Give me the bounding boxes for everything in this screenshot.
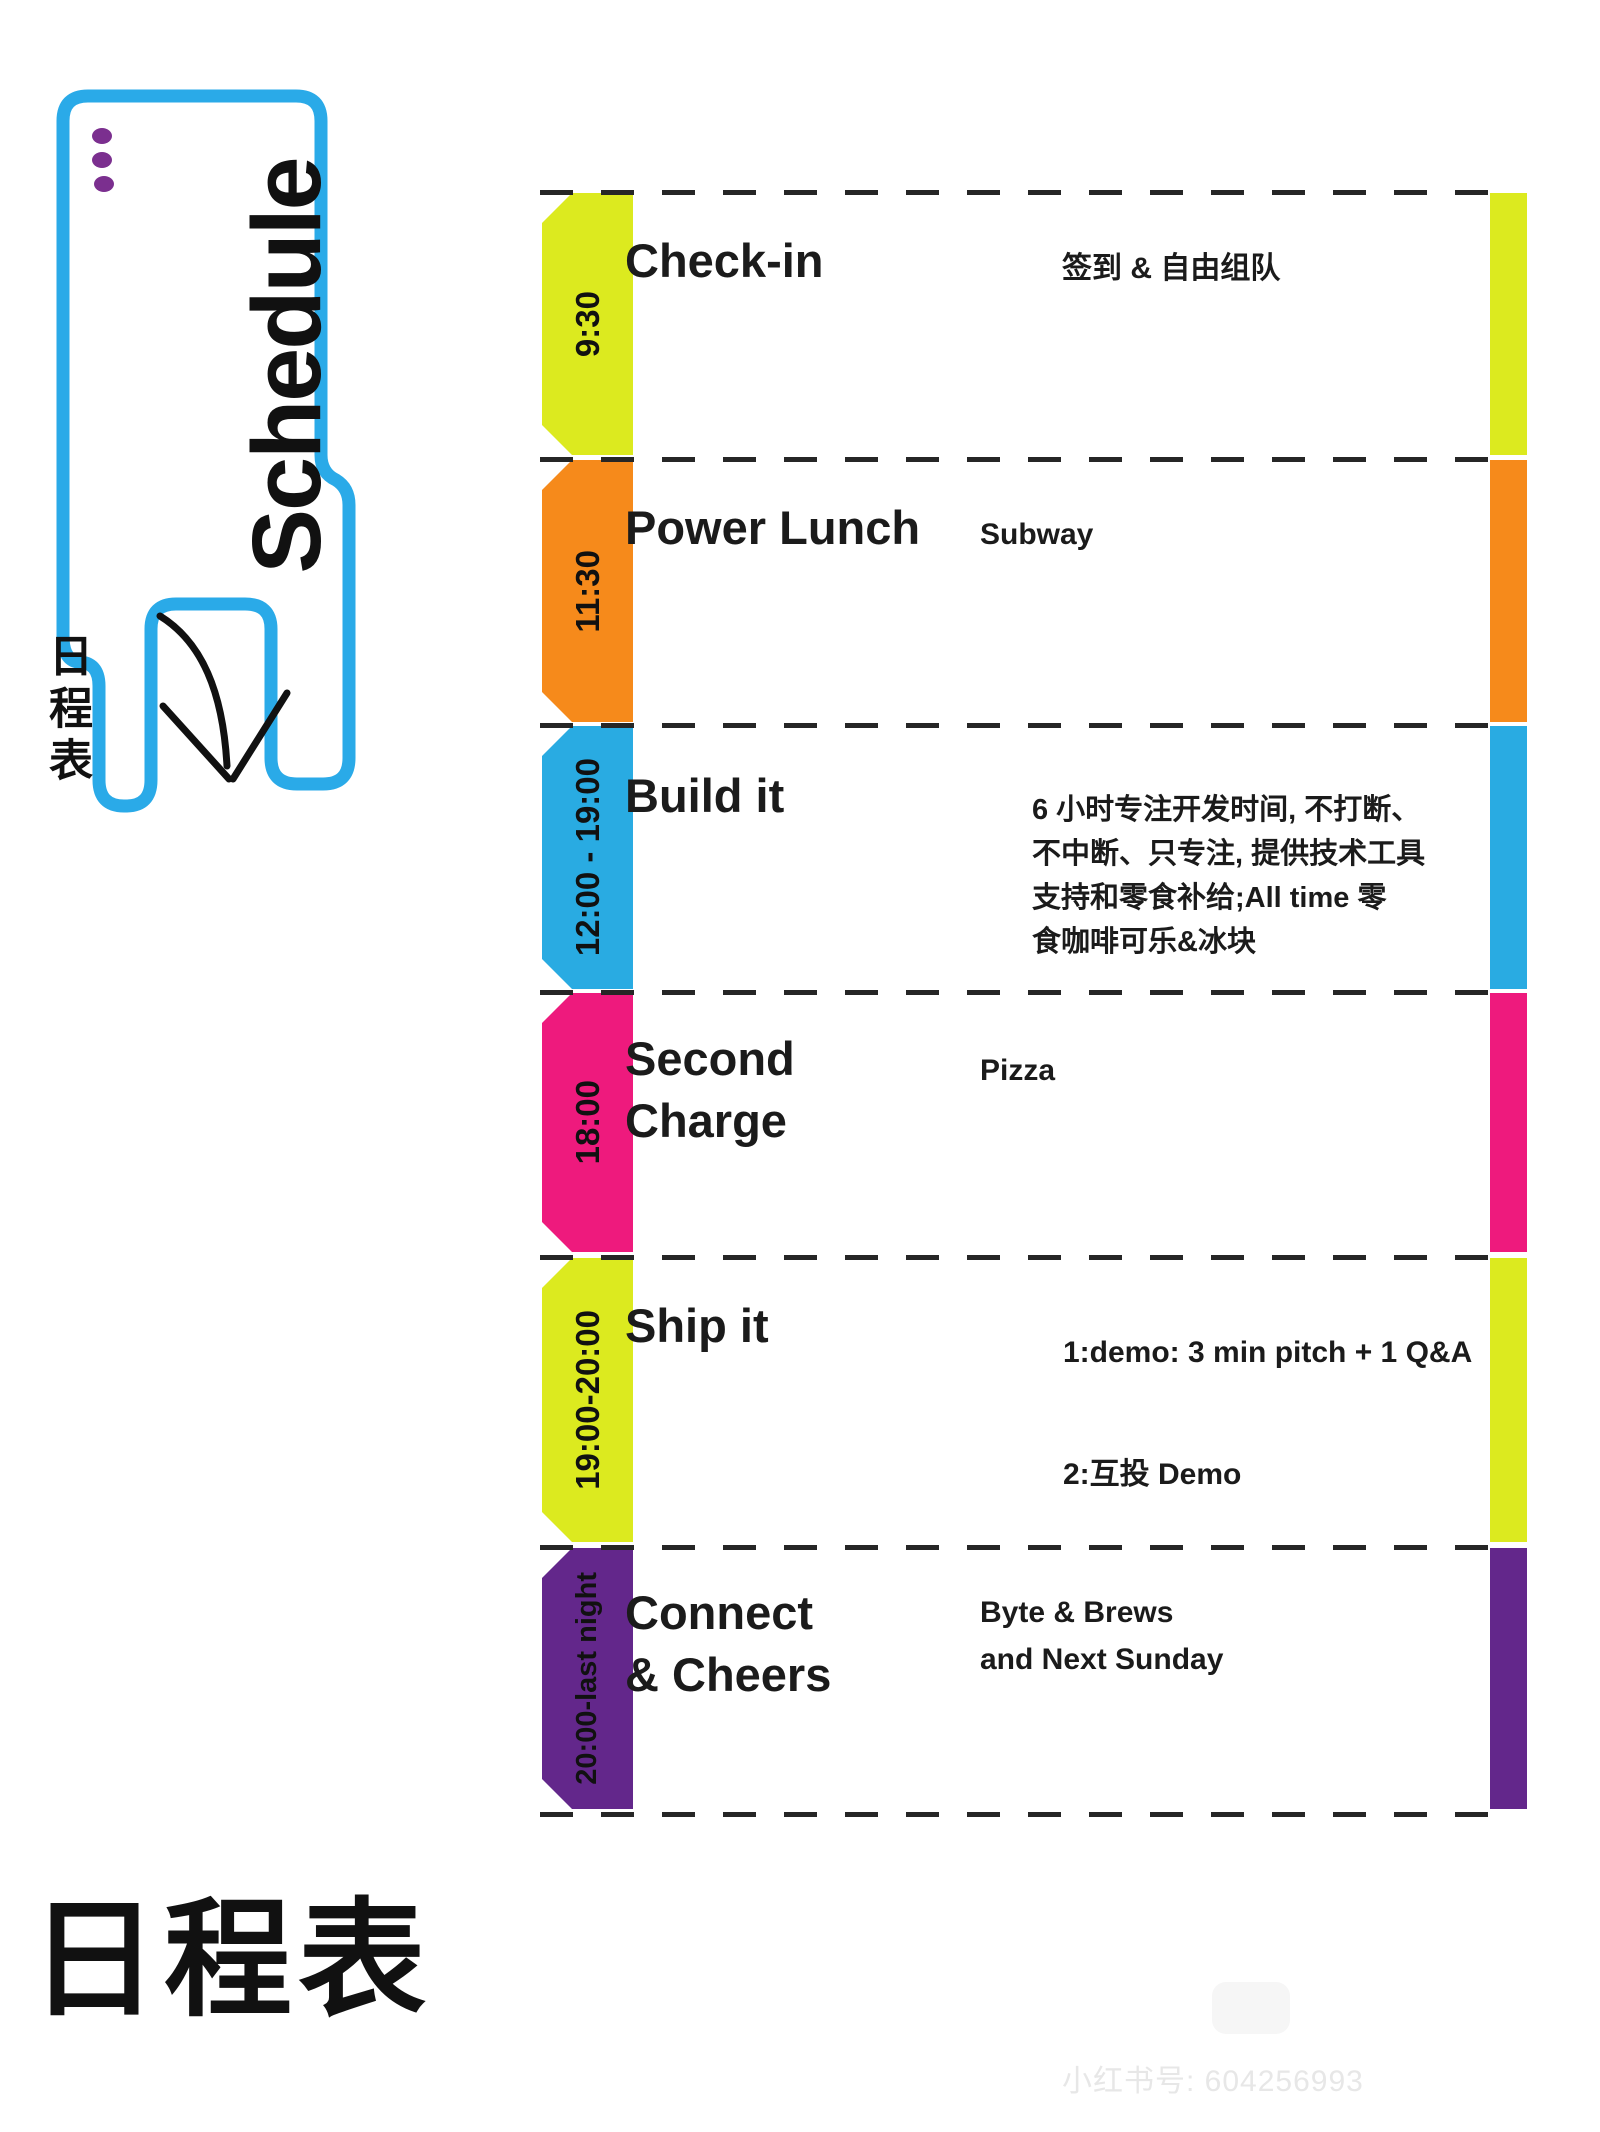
richengbiao-vertical-label: 日程表 <box>34 633 98 789</box>
schedule-vertical-title: Schedule <box>231 158 343 573</box>
three-dots-icon <box>92 128 114 192</box>
color-strip-checkin <box>1490 193 1527 455</box>
color-strip-build-it <box>1490 726 1527 989</box>
event-title-second-charge: Second Charge <box>625 1028 795 1152</box>
event-desc-build-it: 6 小时专注开发时间, 不打断、 不中断、只专注, 提供技术工具 支持和零食补给… <box>1032 788 1425 964</box>
event-desc-second-charge: Pizza <box>980 1048 1055 1093</box>
dashed-line <box>540 1255 1492 1260</box>
time-label: 20:00-last night <box>571 1572 604 1785</box>
poster-title-cn: 日程表 <box>30 1856 432 2041</box>
event-desc-power-lunch: Subway <box>980 512 1093 557</box>
time-tab-connect-cheers: 20:00-last night <box>542 1548 633 1809</box>
color-strip-second-charge <box>1490 993 1527 1252</box>
dashed-line <box>540 1545 1492 1550</box>
time-tab-second-charge: 18:00 <box>542 993 633 1252</box>
event-desc-ship-it-1: 1:demo: 3 min pitch + 1 Q&A <box>1063 1330 1472 1375</box>
time-tab-ship-it: 19:00-20:00 <box>542 1258 633 1542</box>
time-label: 9:30 <box>569 291 607 357</box>
dashed-line <box>540 990 1492 995</box>
event-title-ship-it: Ship it <box>625 1295 769 1357</box>
color-strip-power-lunch <box>1490 460 1527 722</box>
event-title-connect-cheers: Connect & Cheers <box>625 1582 831 1706</box>
dashed-line <box>540 1812 1492 1817</box>
time-tab-power-lunch: 11:30 <box>542 460 633 722</box>
dashed-line <box>540 723 1492 728</box>
time-tab-checkin: 9:30 <box>542 193 633 455</box>
event-title-checkin: Check-in <box>625 230 824 292</box>
event-title-power-lunch: Power Lunch <box>625 497 920 559</box>
event-desc-connect-cheers: Byte & Brews and Next Sunday <box>980 1590 1223 1683</box>
xiaohongshu-watermark-logo <box>1212 1982 1290 2034</box>
xiaohongshu-watermark-text: 小红书号: 604256993 <box>1062 2056 1364 2100</box>
time-label: 12:00 - 19:00 <box>569 758 607 956</box>
color-strip-ship-it <box>1490 1258 1527 1542</box>
time-tab-build-it: 12:00 - 19:00 <box>542 726 633 989</box>
schedule-table: 9:30 Check-in 签到 & 自由组队 11:30 Power Lunc… <box>540 190 1527 1817</box>
time-label: 18:00 <box>569 1080 607 1164</box>
time-label: 19:00-20:00 <box>569 1310 607 1490</box>
dashed-line <box>540 457 1492 462</box>
schedule-poster: { "header": { "schedule_vertical": "Sche… <box>0 0 1600 2132</box>
event-desc-checkin: 签到 & 自由组队 <box>1062 246 1280 291</box>
event-desc-ship-it-2: 2:互投 Demo <box>1063 1452 1241 1497</box>
color-strip-connect-cheers <box>1490 1548 1527 1809</box>
dashed-line <box>540 190 1492 195</box>
time-label: 11:30 <box>569 550 607 633</box>
event-title-build-it: Build it <box>625 765 784 827</box>
